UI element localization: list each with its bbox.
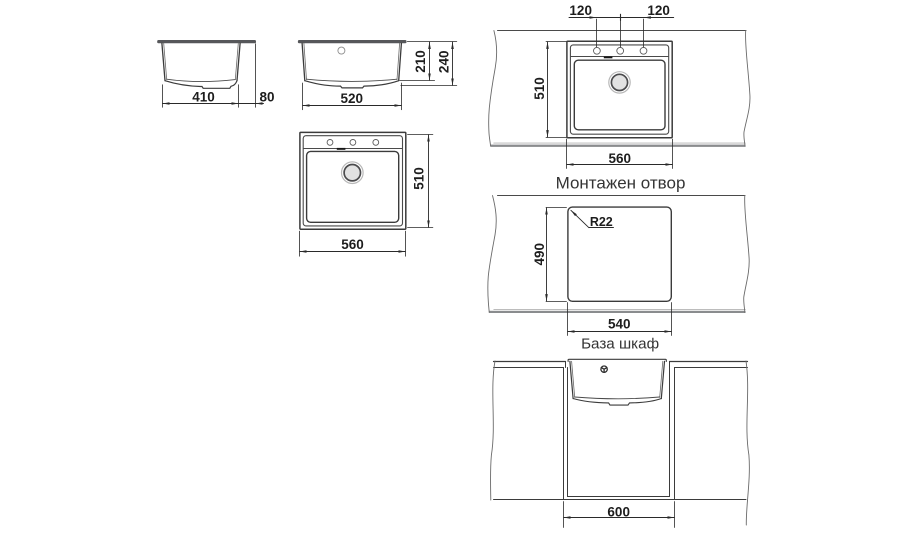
svg-text:240: 240 — [436, 51, 451, 74]
svg-text:Монтажен отвор: Монтажен отвор — [556, 174, 686, 193]
svg-text:410: 410 — [192, 90, 215, 105]
svg-text:510: 510 — [412, 167, 427, 190]
svg-text:120: 120 — [647, 3, 670, 18]
svg-text:490: 490 — [532, 243, 547, 266]
svg-text:600: 600 — [607, 504, 630, 519]
svg-text:510: 510 — [532, 77, 547, 100]
svg-text:80: 80 — [259, 90, 274, 105]
svg-text:210: 210 — [413, 50, 428, 73]
svg-text:120: 120 — [569, 3, 592, 18]
svg-text:520: 520 — [341, 91, 364, 106]
svg-text:База шкаф: База шкаф — [581, 336, 659, 353]
svg-text:560: 560 — [609, 151, 632, 166]
svg-text:R22: R22 — [590, 215, 613, 229]
svg-text:540: 540 — [608, 317, 631, 332]
svg-text:560: 560 — [341, 237, 364, 252]
